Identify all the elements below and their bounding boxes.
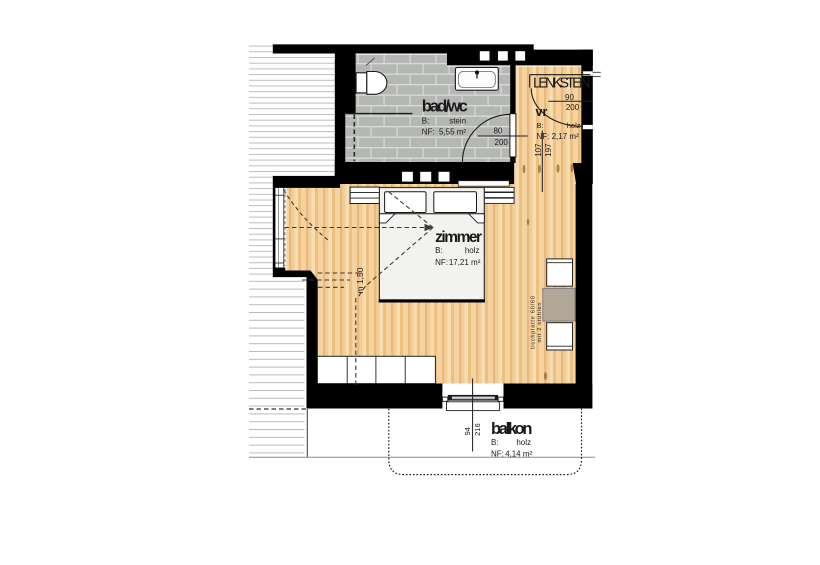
svg-text:mit 2 stühlen: mit 2 stühlen xyxy=(537,303,543,343)
svg-text:107: 107 xyxy=(534,143,543,157)
svg-text:NF:: NF: xyxy=(435,258,448,267)
svg-text:B:: B: xyxy=(422,116,430,125)
svg-text:tischplatte 60/60: tischplatte 60/60 xyxy=(531,296,537,349)
svg-text:holz: holz xyxy=(567,121,581,130)
svg-text:holz: holz xyxy=(465,246,480,255)
svg-text:90: 90 xyxy=(565,93,574,102)
svg-text:4,14 m²: 4,14 m² xyxy=(505,449,532,458)
svg-text:balkon: balkon xyxy=(491,420,533,438)
svg-text:B:: B: xyxy=(435,246,443,255)
svg-text:NF:: NF: xyxy=(491,449,504,458)
svg-text:B:: B: xyxy=(537,121,544,130)
svg-text:bad/wc: bad/wc xyxy=(422,97,468,115)
svg-text:NF:: NF: xyxy=(422,127,435,136)
svg-text:5,55 m²: 5,55 m² xyxy=(439,127,466,136)
svg-text:zimmer: zimmer xyxy=(435,229,482,246)
svg-text:200: 200 xyxy=(566,103,580,112)
svg-text:vr: vr xyxy=(536,105,548,119)
svg-text:m 1,50: m 1,50 xyxy=(355,267,365,293)
svg-text:200: 200 xyxy=(495,138,509,147)
svg-text:80: 80 xyxy=(494,127,503,136)
svg-text:B:: B: xyxy=(491,438,499,447)
svg-text:197: 197 xyxy=(544,143,553,157)
svg-text:LENKSTEIN: LENKSTEIN xyxy=(533,75,591,91)
svg-text:NF: 2,17 m²: NF: 2,17 m² xyxy=(537,132,580,141)
svg-text:17,21 m²: 17,21 m² xyxy=(449,258,481,267)
svg-text:holz: holz xyxy=(516,438,531,447)
svg-text:94: 94 xyxy=(463,427,472,435)
svg-text:stein: stein xyxy=(449,116,466,125)
svg-text:216: 216 xyxy=(473,423,482,436)
